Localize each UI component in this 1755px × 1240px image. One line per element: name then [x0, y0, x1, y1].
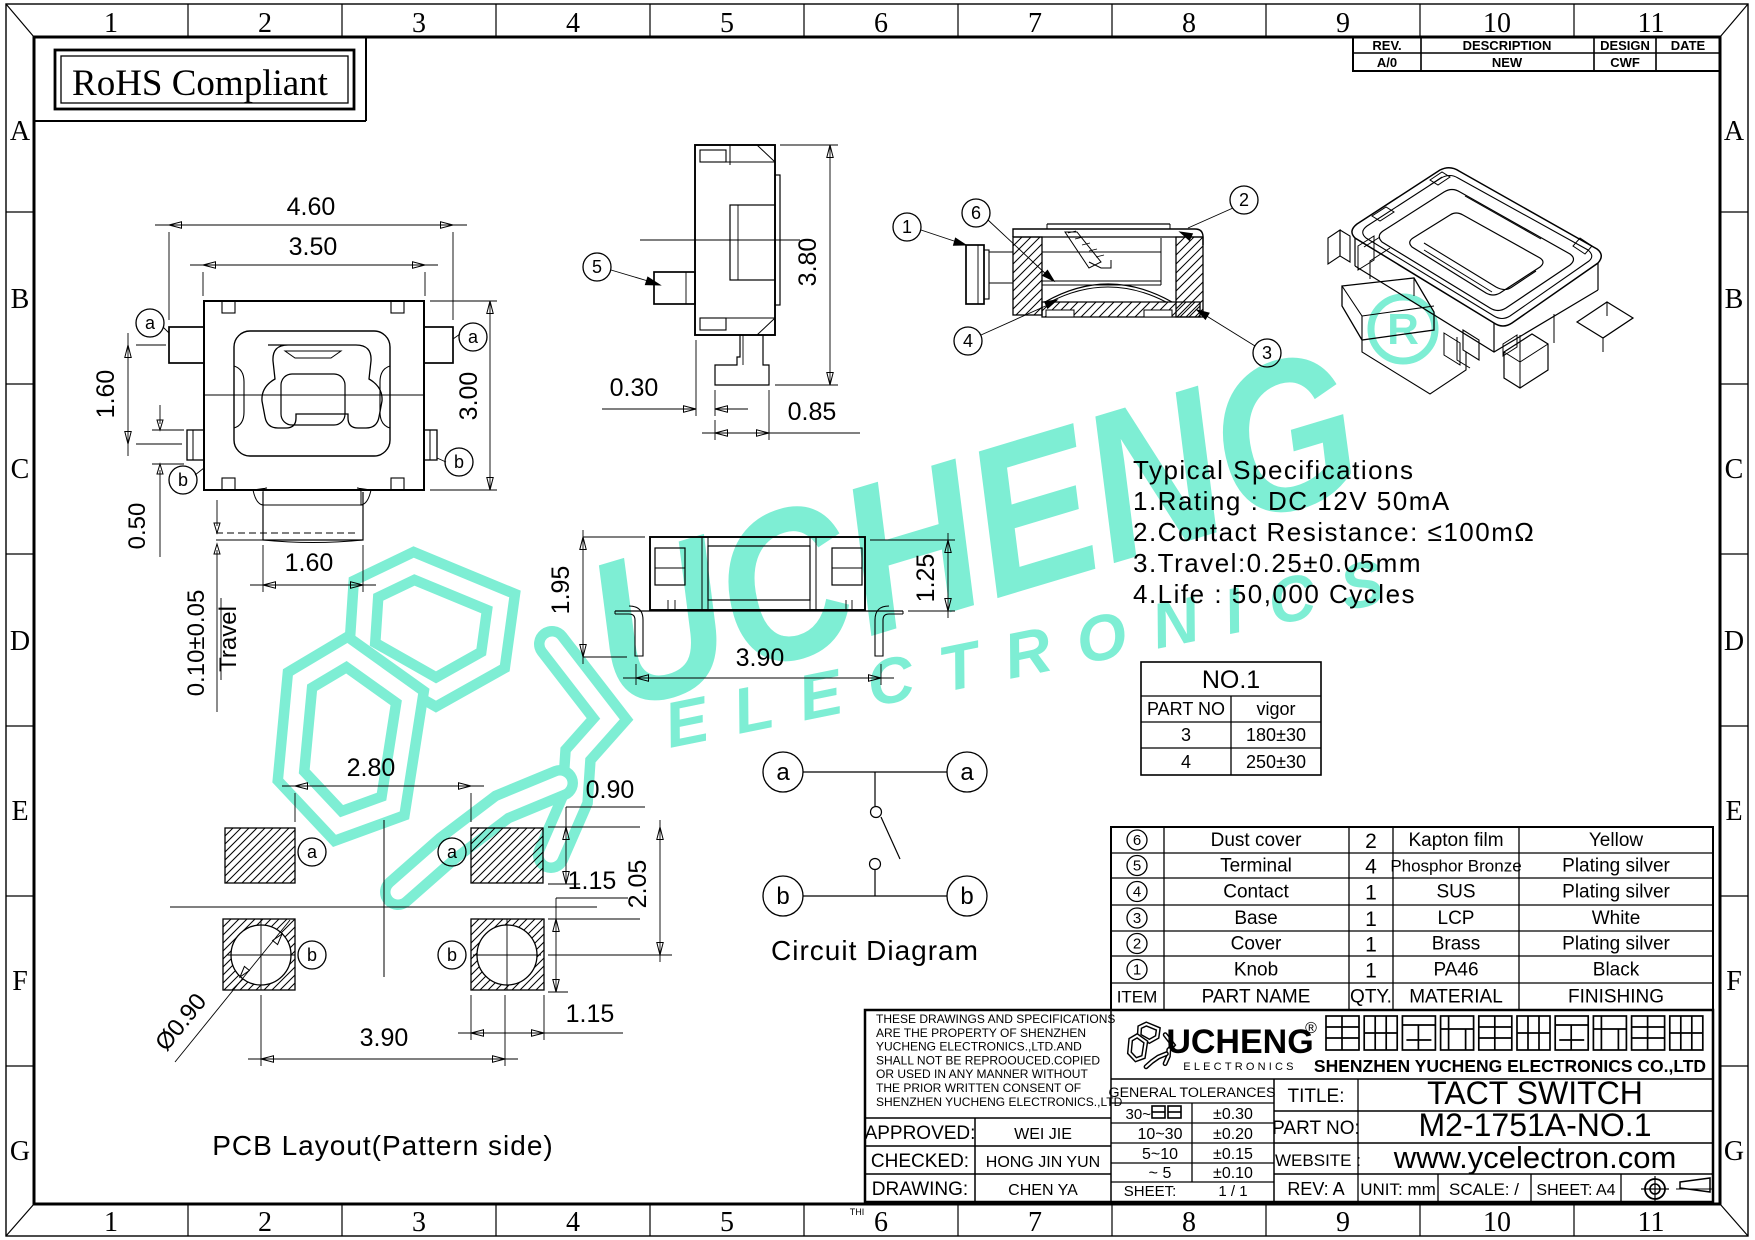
- svg-text:DRAWING:: DRAWING:: [872, 1179, 968, 1200]
- svg-text:2: 2: [1133, 936, 1141, 953]
- svg-text:M2-1751A-NO.1: M2-1751A-NO.1: [1419, 1107, 1652, 1143]
- svg-text:C: C: [1725, 454, 1744, 485]
- svg-text:3.00: 3.00: [455, 372, 483, 421]
- svg-text:0.10±0.05: 0.10±0.05: [183, 590, 210, 697]
- svg-text:3.Travel:0.25±0.05mm: 3.Travel:0.25±0.05mm: [1133, 548, 1422, 578]
- svg-text:9: 9: [1336, 1207, 1350, 1238]
- svg-text:Circuit Diagram: Circuit Diagram: [771, 935, 979, 966]
- svg-text:RoHS Compliant: RoHS Compliant: [72, 63, 329, 104]
- svg-text:THESE DRAWINGS AND SPECIFICATI: THESE DRAWINGS AND SPECIFICATIONS: [876, 1012, 1115, 1026]
- svg-text:4: 4: [1365, 856, 1377, 879]
- svg-text:MATERIAL: MATERIAL: [1409, 987, 1503, 1008]
- svg-text:±0.10: ±0.10: [1213, 1165, 1253, 1182]
- svg-text:PA46: PA46: [1433, 960, 1478, 981]
- svg-text:D: D: [1724, 626, 1744, 657]
- svg-text:1: 1: [1365, 934, 1377, 957]
- svg-text:1 / 1: 1 / 1: [1218, 1183, 1247, 1200]
- svg-text:TACT SWITCH: TACT SWITCH: [1427, 1075, 1643, 1111]
- svg-text:A: A: [10, 116, 31, 147]
- svg-text:Black: Black: [1593, 960, 1640, 981]
- svg-text:6: 6: [874, 1207, 888, 1238]
- svg-text:NO.1: NO.1: [1202, 666, 1260, 694]
- svg-text:B: B: [11, 284, 30, 315]
- svg-text:ELECTRONICS: ELECTRONICS: [1183, 1061, 1296, 1073]
- svg-text:8: 8: [1182, 8, 1196, 39]
- svg-text:7: 7: [1028, 8, 1042, 39]
- svg-text:2: 2: [258, 1207, 272, 1238]
- svg-text:2: 2: [258, 8, 272, 39]
- svg-text:1: 1: [104, 8, 118, 39]
- svg-text:4: 4: [566, 1207, 580, 1238]
- svg-text:UCHENG: UCHENG: [1166, 1023, 1313, 1061]
- svg-text:Dust cover: Dust cover: [1211, 830, 1302, 851]
- svg-text:ARE THE PROPERTY OF SHENZHEN: ARE THE PROPERTY OF SHENZHEN: [876, 1026, 1086, 1040]
- svg-text:1: 1: [104, 1207, 118, 1238]
- svg-text:1.Rating : DC 12V 50mA: 1.Rating : DC 12V 50mA: [1133, 486, 1451, 516]
- svg-text:2.05: 2.05: [624, 860, 652, 909]
- svg-text:3.90: 3.90: [736, 644, 785, 672]
- svg-text:Terminal: Terminal: [1220, 856, 1292, 877]
- svg-text:3.80: 3.80: [794, 238, 822, 287]
- svg-text:a: a: [776, 759, 790, 786]
- svg-text:4: 4: [566, 8, 580, 39]
- svg-text:1: 1: [1365, 960, 1377, 983]
- svg-text:Contact: Contact: [1223, 882, 1289, 903]
- svg-text:GENERAL TOLERANCES: GENERAL TOLERANCES: [1109, 1085, 1276, 1101]
- svg-text:1.60: 1.60: [92, 370, 120, 419]
- svg-text:www.ycelectron.com: www.ycelectron.com: [1393, 1140, 1677, 1175]
- svg-text:Travel: Travel: [215, 606, 242, 672]
- svg-text:2: 2: [1239, 190, 1249, 210]
- svg-text:SUS: SUS: [1436, 882, 1475, 903]
- svg-text:b: b: [776, 883, 789, 910]
- svg-text:3: 3: [412, 8, 426, 39]
- svg-text:WEBSITE :: WEBSITE :: [1275, 1151, 1361, 1170]
- svg-text:30~: 30~: [1126, 1106, 1152, 1123]
- svg-text:0.50: 0.50: [124, 503, 151, 550]
- svg-text:180±30: 180±30: [1246, 725, 1306, 745]
- svg-text:2.80: 2.80: [347, 754, 396, 782]
- svg-text:QTY.: QTY.: [1350, 987, 1392, 1008]
- svg-text:a: a: [468, 327, 479, 347]
- svg-text:SHENZHEN YUCHENG ELECTRONICS.,: SHENZHEN YUCHENG ELECTRONICS.,LTD: [876, 1095, 1123, 1109]
- svg-text:a: a: [447, 842, 458, 862]
- svg-text:THE PRIOR WRITTEN CONSENT OF: THE PRIOR WRITTEN CONSENT OF: [876, 1081, 1081, 1095]
- svg-text:1.25: 1.25: [912, 554, 940, 603]
- svg-text:REV: A: REV: A: [1287, 1179, 1344, 1199]
- svg-text:0.90: 0.90: [586, 776, 635, 804]
- svg-text:1.15: 1.15: [566, 1000, 615, 1028]
- svg-text:~ 5: ~ 5: [1149, 1165, 1172, 1182]
- svg-text:0.85: 0.85: [788, 398, 837, 426]
- svg-text:CHECKED:: CHECKED:: [871, 1151, 969, 1172]
- svg-text:4.Life : 50,000 Cycles: 4.Life : 50,000 Cycles: [1133, 579, 1416, 609]
- svg-text:6: 6: [971, 203, 981, 223]
- svg-text:a: a: [960, 759, 974, 786]
- svg-text:F: F: [1726, 966, 1742, 997]
- svg-text:b: b: [454, 452, 464, 472]
- svg-text:PCB Layout(Pattern side): PCB Layout(Pattern side): [212, 1130, 554, 1161]
- svg-text:11: 11: [1638, 8, 1665, 39]
- svg-text:SHENZHEN YUCHENG ELECTRONICS C: SHENZHEN YUCHENG ELECTRONICS CO.,LTD: [1314, 1056, 1706, 1076]
- svg-text:SHALL NOT BE REPROOUCED.COPIED: SHALL NOT BE REPROOUCED.COPIED: [876, 1053, 1100, 1067]
- svg-text:3.90: 3.90: [360, 1024, 409, 1052]
- svg-text:SHEET: A4: SHEET: A4: [1536, 1182, 1615, 1199]
- svg-text:F: F: [12, 966, 28, 997]
- svg-text:2.Contact Resistance: ≤100mΩ: 2.Contact Resistance: ≤100mΩ: [1133, 517, 1535, 547]
- svg-text:THI: THI: [850, 1207, 865, 1217]
- svg-text:WEI JIE: WEI JIE: [1014, 1126, 1072, 1143]
- svg-text:A: A: [1724, 116, 1745, 147]
- svg-text:Plating silver: Plating silver: [1562, 882, 1670, 903]
- svg-text:4: 4: [963, 331, 973, 351]
- svg-text:9: 9: [1336, 8, 1350, 39]
- svg-text:LCP: LCP: [1438, 908, 1475, 929]
- svg-text:a: a: [145, 313, 156, 333]
- svg-text:10: 10: [1483, 8, 1511, 39]
- svg-text:Base: Base: [1234, 908, 1277, 929]
- svg-text:G: G: [1724, 1136, 1744, 1167]
- svg-text:Knob: Knob: [1234, 960, 1278, 981]
- svg-text:±0.20: ±0.20: [1213, 1126, 1253, 1143]
- svg-text:±0.15: ±0.15: [1213, 1146, 1253, 1163]
- svg-text:YUCHENG ELECTRONICS.,LTD.AND: YUCHENG ELECTRONICS.,LTD.AND: [876, 1040, 1082, 1054]
- svg-text:5: 5: [720, 1207, 734, 1238]
- svg-text:Yellow: Yellow: [1589, 830, 1644, 851]
- svg-text:C: C: [11, 454, 30, 485]
- svg-text:Plating silver: Plating silver: [1562, 934, 1670, 955]
- svg-text:CWF: CWF: [1610, 55, 1640, 70]
- svg-text:REV.: REV.: [1372, 38, 1401, 53]
- svg-text:±0.30: ±0.30: [1213, 1106, 1253, 1123]
- svg-text:vigor: vigor: [1256, 699, 1295, 719]
- svg-text:5: 5: [1133, 858, 1141, 875]
- svg-text:3: 3: [1181, 725, 1191, 745]
- svg-text:DATE: DATE: [1671, 38, 1706, 53]
- svg-text:5: 5: [592, 257, 602, 277]
- svg-text:White: White: [1592, 908, 1641, 929]
- svg-text:3: 3: [1133, 910, 1141, 927]
- svg-text:250±30: 250±30: [1246, 752, 1306, 772]
- svg-text:CHEN YA: CHEN YA: [1008, 1182, 1078, 1199]
- svg-text:3: 3: [1262, 343, 1272, 363]
- svg-text:ITEM: ITEM: [1117, 988, 1158, 1007]
- svg-text:2: 2: [1365, 830, 1377, 853]
- svg-text:1: 1: [1365, 908, 1377, 931]
- svg-text:1.95: 1.95: [547, 566, 575, 615]
- svg-text:B: B: [1725, 284, 1744, 315]
- svg-text:E: E: [1725, 796, 1742, 827]
- svg-text:b: b: [178, 470, 188, 490]
- svg-text:PART NO:: PART NO:: [1272, 1118, 1360, 1139]
- svg-text:Plating silver: Plating silver: [1562, 856, 1670, 877]
- svg-text:TITLE:: TITLE:: [1287, 1086, 1344, 1107]
- svg-text:PART NAME: PART NAME: [1202, 987, 1311, 1008]
- svg-text:0.30: 0.30: [610, 374, 659, 402]
- svg-text:OR USED IN ANY MANNER WITHOUT: OR USED IN ANY MANNER WITHOUT: [876, 1067, 1088, 1081]
- svg-text:Kapton film: Kapton film: [1408, 830, 1503, 851]
- svg-text:Brass: Brass: [1432, 934, 1481, 955]
- svg-text:1.15: 1.15: [568, 867, 617, 895]
- svg-text:DESCRIPTION: DESCRIPTION: [1463, 38, 1552, 53]
- svg-text:1.60: 1.60: [285, 549, 334, 577]
- svg-text:Phosphor Bronze: Phosphor Bronze: [1390, 857, 1521, 876]
- svg-text:Typical Specifications: Typical Specifications: [1133, 455, 1415, 485]
- svg-text:b: b: [307, 945, 317, 965]
- svg-text:8: 8: [1182, 1207, 1196, 1238]
- svg-text:FINISHING: FINISHING: [1568, 987, 1664, 1008]
- svg-text:1: 1: [1365, 882, 1377, 905]
- svg-text:4: 4: [1181, 752, 1191, 772]
- svg-text:G: G: [10, 1136, 30, 1167]
- svg-text:4: 4: [1133, 884, 1141, 901]
- svg-text:5: 5: [720, 8, 734, 39]
- svg-text:10: 10: [1483, 1207, 1511, 1238]
- svg-text:UNIT: mm: UNIT: mm: [1360, 1180, 1436, 1199]
- svg-text:1: 1: [1133, 962, 1141, 979]
- svg-text:Cover: Cover: [1231, 934, 1282, 955]
- svg-text:a: a: [307, 842, 318, 862]
- svg-text:NEW: NEW: [1492, 55, 1523, 70]
- svg-text:SCALE: /: SCALE: /: [1449, 1180, 1519, 1199]
- svg-text:3: 3: [412, 1207, 426, 1238]
- svg-text:6: 6: [874, 8, 888, 39]
- svg-text:PART NO: PART NO: [1147, 699, 1225, 719]
- svg-text:7: 7: [1028, 1207, 1042, 1238]
- svg-text:b: b: [447, 945, 457, 965]
- svg-text:5~10: 5~10: [1142, 1146, 1178, 1163]
- svg-text:SHEET:: SHEET:: [1124, 1183, 1177, 1200]
- svg-text:E: E: [11, 796, 28, 827]
- svg-text:6: 6: [1133, 832, 1141, 849]
- svg-text:®: ®: [1305, 1020, 1317, 1037]
- svg-text:A/0: A/0: [1377, 55, 1397, 70]
- svg-text:10~30: 10~30: [1138, 1126, 1183, 1143]
- svg-text:4.60: 4.60: [287, 193, 336, 221]
- svg-text:1: 1: [902, 217, 912, 237]
- svg-text:3.50: 3.50: [289, 233, 338, 261]
- svg-text:11: 11: [1638, 1207, 1665, 1238]
- svg-text:DESIGN: DESIGN: [1600, 38, 1650, 53]
- svg-text:D: D: [10, 626, 30, 657]
- svg-text:b: b: [960, 883, 973, 910]
- svg-text:HONG JIN YUN: HONG JIN YUN: [986, 1154, 1100, 1171]
- svg-text:APPROVED:: APPROVED:: [865, 1123, 976, 1144]
